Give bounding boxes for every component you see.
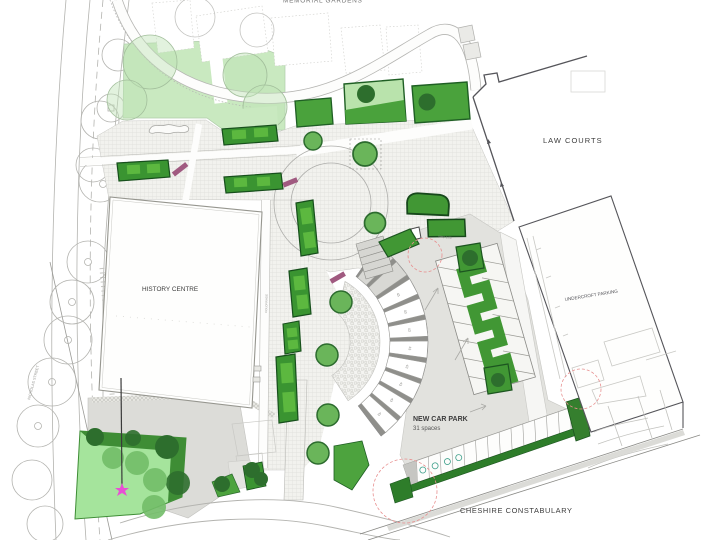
svg-text:31 spaces: 31 spaces xyxy=(413,426,440,432)
svg-text:CHESHIRE CONSTABULARY: CHESHIRE CONSTABULARY xyxy=(460,506,573,515)
svg-text:HISTORY CENTRE: HISTORY CENTRE xyxy=(142,286,198,293)
svg-text:NEW CAR PARK: NEW CAR PARK xyxy=(413,416,468,423)
svg-text:43: 43 xyxy=(408,346,412,350)
svg-text:COLONNADE: COLONNADE xyxy=(264,294,269,313)
svg-text:LAW COURTS: LAW COURTS xyxy=(543,136,603,145)
svg-text:MEMORIAL GARDENS: MEMORIAL GARDENS xyxy=(283,0,363,5)
svg-text:43: 43 xyxy=(407,328,411,332)
